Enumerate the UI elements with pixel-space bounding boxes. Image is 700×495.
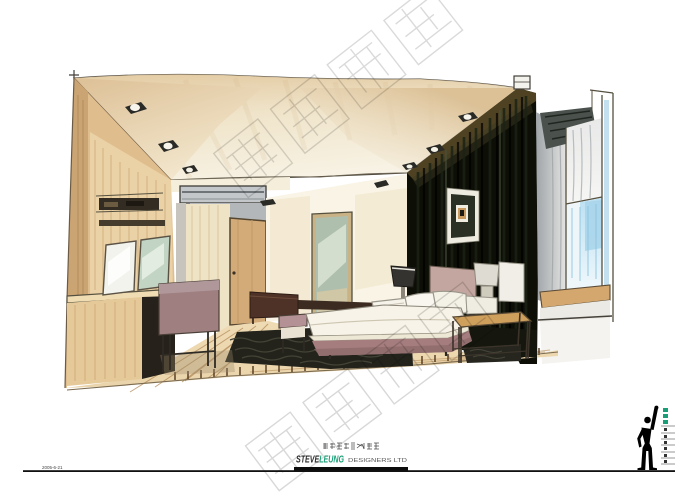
svg-text:STEVELEUNG: STEVELEUNG	[296, 455, 344, 466]
svg-text:DESIGNERS LTD: DESIGNERS LTD	[348, 458, 407, 464]
svg-text:2005-6-21: 2005-6-21	[42, 465, 63, 470]
